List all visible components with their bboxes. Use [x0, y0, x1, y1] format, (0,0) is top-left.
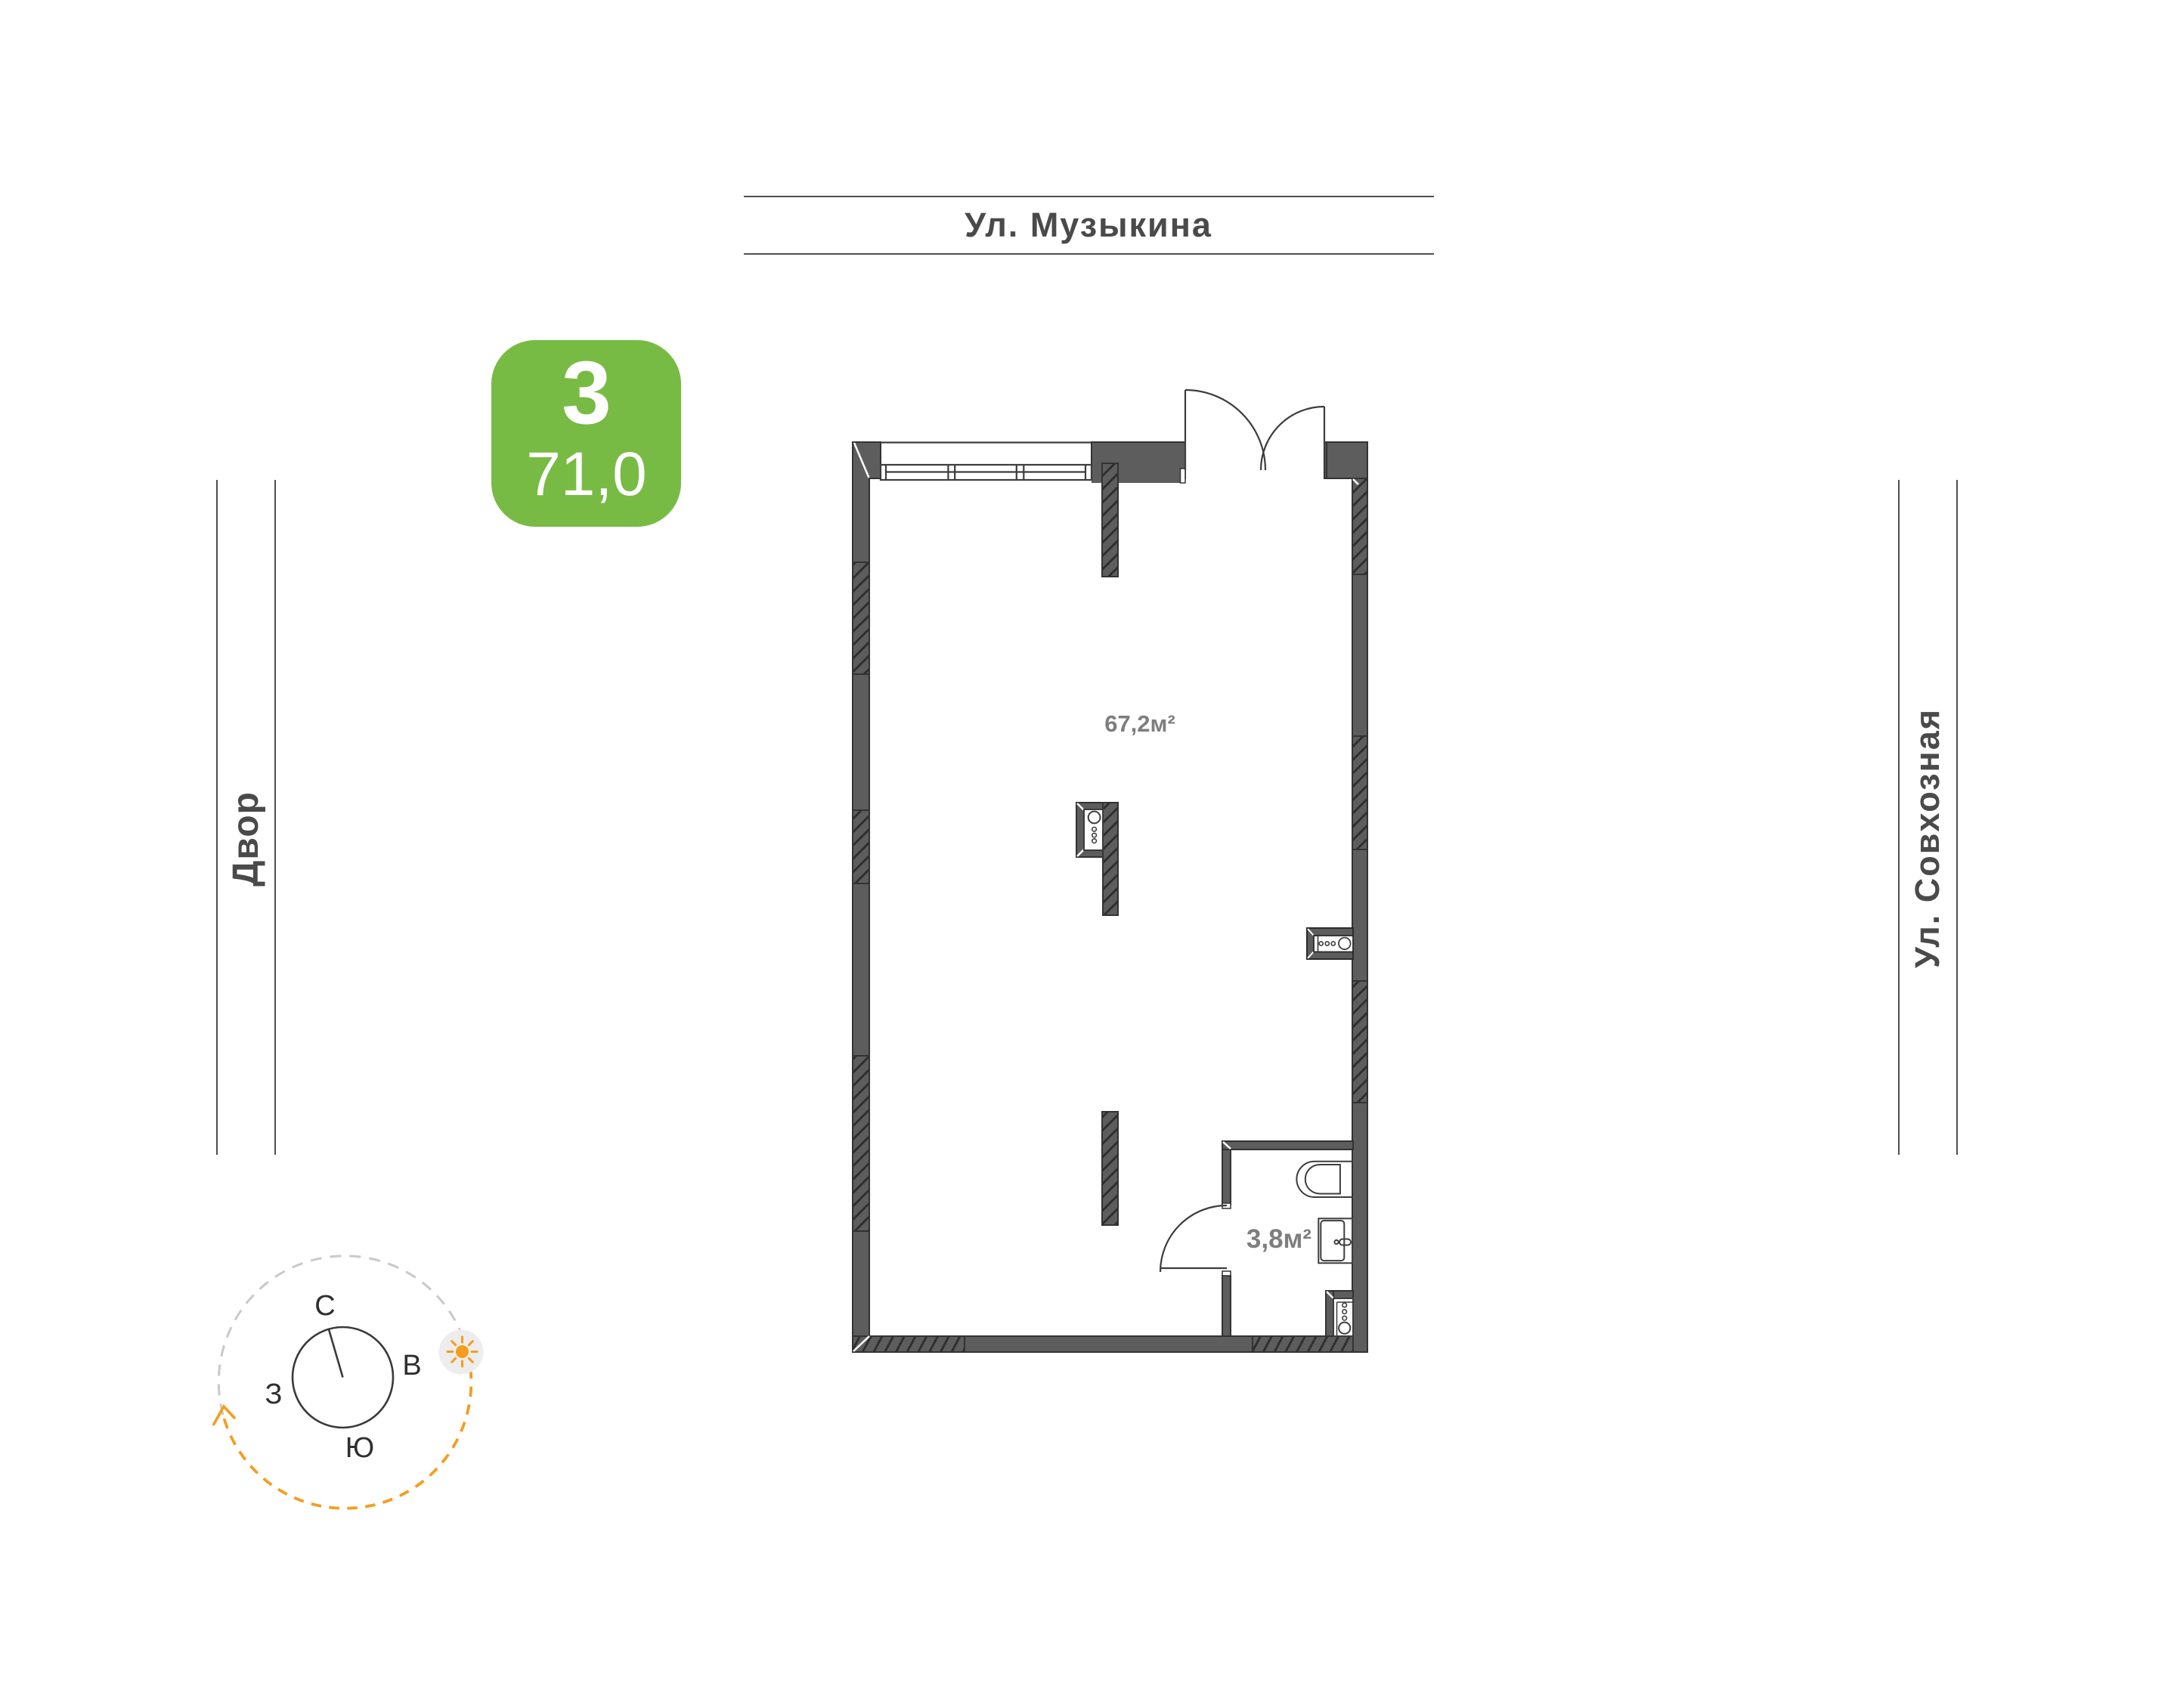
- svg-text:Ул. Музыкина: Ул. Музыкина: [965, 206, 1212, 244]
- svg-text:Ю: Ю: [345, 1432, 374, 1464]
- svg-text:3,8м²: 3,8м²: [1246, 1224, 1311, 1254]
- svg-text:67,2м²: 67,2м²: [1104, 710, 1175, 737]
- svg-text:71,0: 71,0: [526, 440, 647, 509]
- svg-text:3: 3: [562, 343, 612, 443]
- svg-text:З: З: [265, 1378, 283, 1410]
- svg-text:С: С: [314, 1290, 335, 1322]
- svg-text:Ул. Совхозная: Ул. Совхозная: [1908, 708, 1946, 968]
- svg-text:В: В: [402, 1350, 421, 1382]
- svg-text:Двор: Двор: [226, 791, 266, 886]
